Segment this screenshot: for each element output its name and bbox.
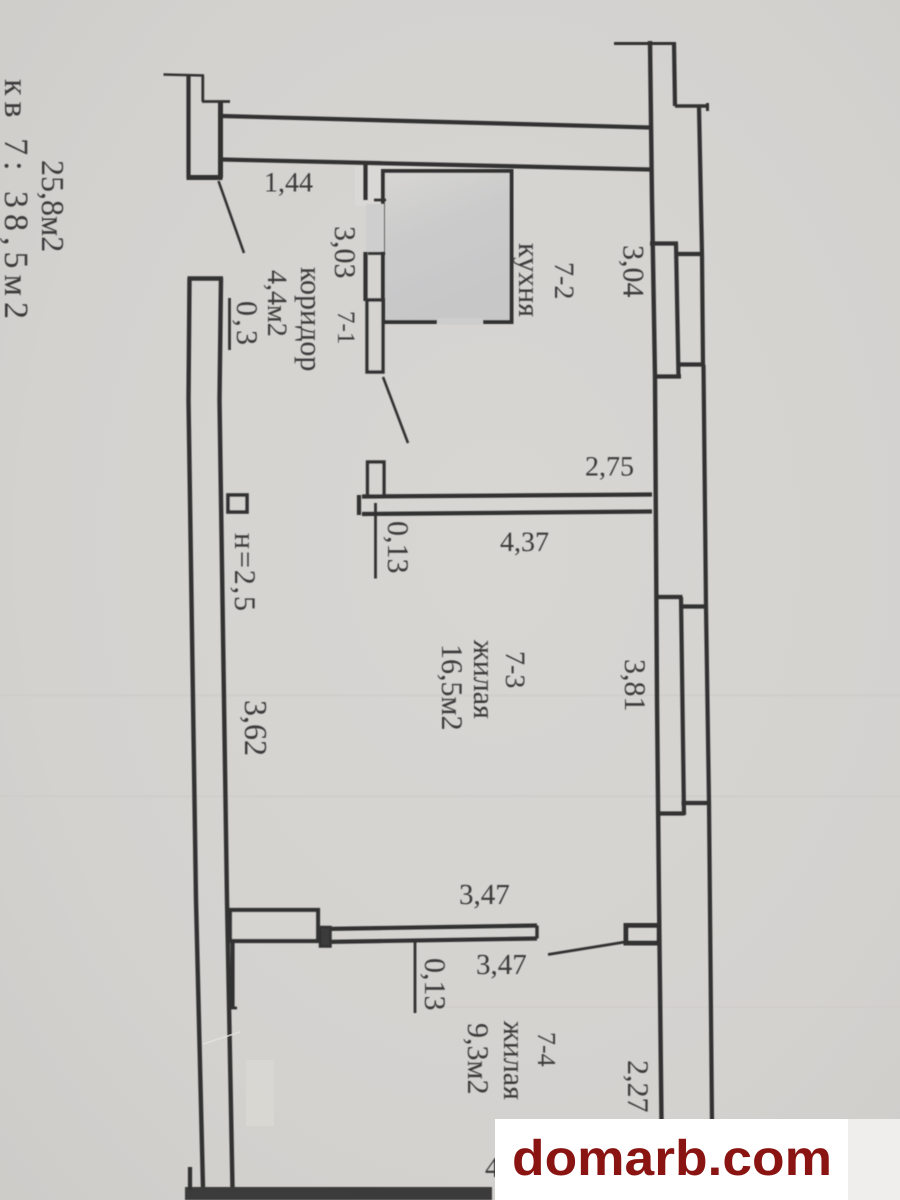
svg-text:кухня: кухня: [512, 243, 545, 317]
svg-text:3,04: 3,04: [617, 245, 650, 298]
svg-text:жилая: жилая: [467, 639, 500, 719]
svg-text:0,13: 0,13: [418, 958, 451, 1011]
svg-text:3,81: 3,81: [618, 659, 651, 712]
svg-text:9,3м2: 9,3м2: [461, 1023, 494, 1094]
svg-text:кв 7: 38,5м2: кв 7: 38,5м2: [0, 79, 34, 319]
svg-text:7-2: 7-2: [548, 262, 579, 299]
svg-text:3,62: 3,62: [238, 700, 274, 756]
svg-text:0,13: 0,13: [381, 521, 414, 574]
svg-text:16,5м2: 16,5м2: [435, 644, 468, 730]
svg-text:7-1: 7-1: [332, 311, 359, 344]
svg-text:0,3: 0,3: [230, 301, 263, 345]
svg-text:3,47: 3,47: [476, 949, 527, 981]
svg-text:1,44: 1,44: [264, 168, 313, 199]
svg-text:3,47: 3,47: [459, 879, 510, 911]
svg-text:3,03: 3,03: [328, 226, 361, 279]
svg-text:4,4м2: 4,4м2: [261, 270, 292, 337]
svg-text:4,37: 4,37: [500, 527, 549, 558]
svg-text:н=2,5: н=2,5: [228, 533, 261, 611]
svg-text:25,8м2: 25,8м2: [35, 160, 71, 252]
svg-text:жилая: жилая: [497, 1020, 530, 1100]
svg-text:domarb.com: domarb.com: [512, 1130, 832, 1186]
svg-text:7-4: 7-4: [532, 1032, 561, 1067]
svg-text:2,27: 2,27: [621, 1060, 654, 1113]
svg-text:7-3: 7-3: [499, 651, 530, 688]
svg-text:2,75: 2,75: [585, 452, 634, 483]
svg-text:коридор: коридор: [294, 267, 327, 371]
